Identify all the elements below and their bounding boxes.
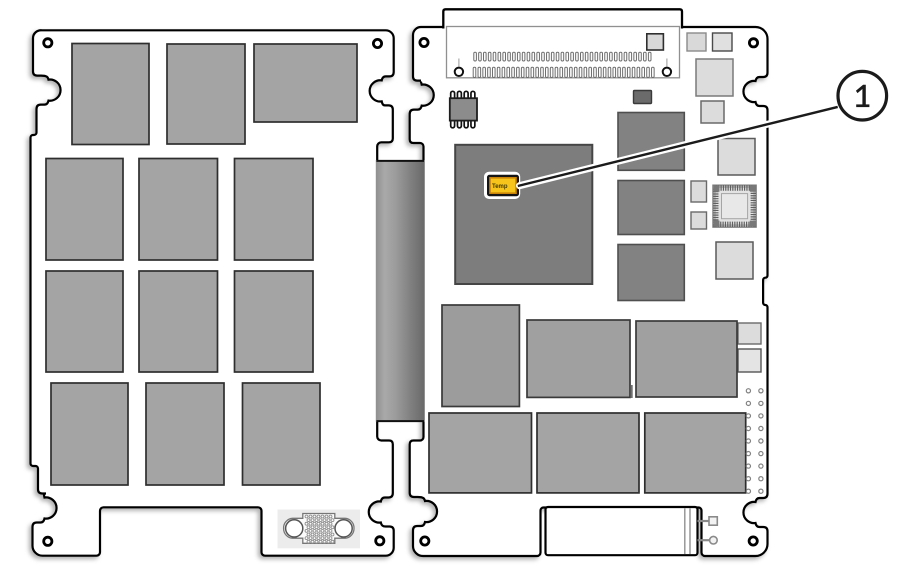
svg-text:Temp: Temp	[492, 184, 508, 190]
